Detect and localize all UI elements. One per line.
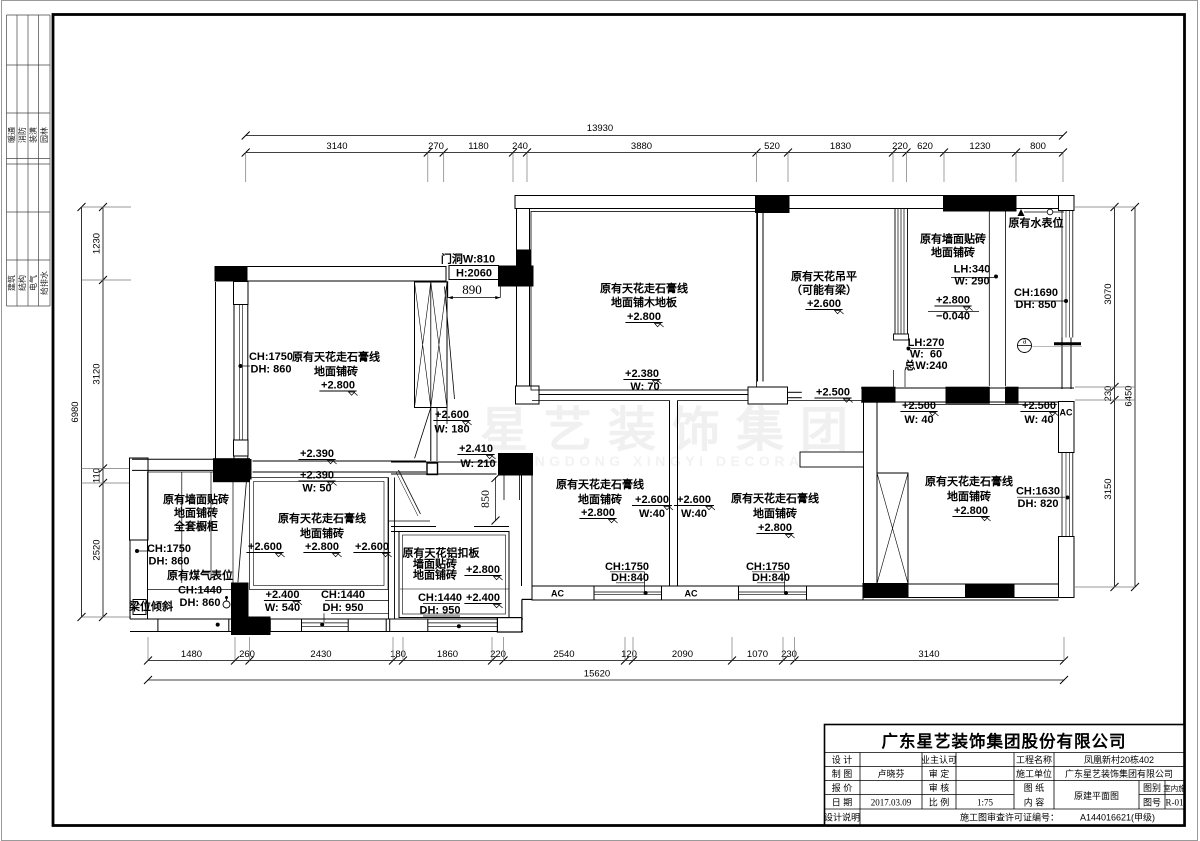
svg-text:+2.600: +2.600 — [807, 298, 841, 310]
svg-text:1070: 1070 — [747, 649, 768, 660]
svg-text:消防: 消防 — [17, 127, 27, 143]
svg-text:报 价: 报 价 — [832, 782, 853, 793]
svg-text:电气: 电气 — [28, 275, 38, 291]
svg-text:3120: 3120 — [92, 363, 103, 384]
svg-text:DH: 950: DH: 950 — [420, 605, 461, 617]
svg-text:AC: AC — [551, 589, 564, 599]
svg-text:W: 70: W: 70 — [630, 381, 659, 393]
svg-text:施工图审查许可证编号：: 施工图审查许可证编号： — [960, 812, 1059, 823]
svg-text:墙面贴砖: 墙面贴砖 — [413, 557, 457, 571]
svg-text:业主认可: 业主认可 — [921, 754, 957, 765]
svg-text:地面铺砖: 地面铺砖 — [947, 489, 991, 503]
svg-text:LH:340: LH:340 — [954, 264, 991, 276]
svg-text:图 纸: 图 纸 — [1024, 782, 1045, 793]
svg-text:原有天花走石膏线: 原有天花走石膏线 — [292, 350, 380, 364]
svg-text:+2.390: +2.390 — [300, 470, 334, 482]
svg-text:+2.600: +2.600 — [635, 494, 669, 506]
svg-text:+2.600: +2.600 — [355, 541, 389, 553]
svg-text:3070: 3070 — [1103, 283, 1114, 304]
svg-text:+2.410: +2.410 — [459, 443, 493, 455]
svg-text:地面铺砖: 地面铺砖 — [753, 506, 797, 520]
svg-text:原有墙面贴砖: 原有墙面贴砖 — [163, 492, 229, 506]
svg-text:园林: 园林 — [39, 127, 49, 143]
svg-text:日 期: 日 期 — [832, 798, 853, 808]
svg-text:审 核: 审 核 — [929, 782, 950, 793]
svg-text:1830: 1830 — [830, 141, 851, 152]
svg-text:+2.800: +2.800 — [627, 311, 661, 323]
svg-text:−0.040: −0.040 — [936, 311, 970, 323]
svg-text:6450: 6450 — [1124, 385, 1135, 406]
svg-text:2017.03.09: 2017.03.09 — [871, 798, 912, 808]
svg-text:设 计: 设 计 — [832, 754, 853, 765]
svg-text:+2.800: +2.800 — [936, 295, 970, 307]
svg-text:13930: 13930 — [587, 123, 613, 134]
svg-text:2430: 2430 — [310, 649, 331, 660]
svg-text:卢晓芬: 卢晓芬 — [877, 768, 904, 779]
svg-text:地面铺砖: 地面铺砖 — [931, 245, 975, 259]
svg-text:内 容: 内 容 — [1024, 797, 1045, 808]
svg-text:地面铺砖: 地面铺砖 — [300, 526, 344, 540]
svg-text:DH:840: DH:840 — [611, 572, 649, 584]
svg-text:W:40: W:40 — [639, 508, 665, 520]
svg-text:620: 620 — [917, 141, 933, 152]
svg-text:原有煤气表位: 原有煤气表位 — [167, 568, 233, 582]
svg-text:给排水: 给排水 — [39, 271, 49, 295]
svg-text:W: 50: W: 50 — [302, 483, 331, 495]
svg-text:原有天花走石膏线: 原有天花走石膏线 — [925, 474, 1013, 488]
svg-text:120: 120 — [621, 649, 637, 660]
svg-text:CH:1440: CH:1440 — [321, 589, 365, 601]
svg-text:地面铺木地板: 地面铺木地板 — [611, 295, 678, 309]
svg-text:广东星艺装饰集团股份有限公司: 广东星艺装饰集团股份有限公司 — [882, 731, 1127, 751]
svg-text:A144016621(甲级): A144016621(甲级) — [1080, 812, 1155, 823]
svg-text:+2.500: +2.500 — [816, 387, 850, 399]
svg-text:AC: AC — [1060, 408, 1073, 418]
svg-text:3140: 3140 — [918, 649, 939, 660]
svg-text:+2.400: +2.400 — [466, 592, 500, 604]
svg-text:DH: 860: DH: 860 — [180, 597, 221, 609]
svg-text:地面铺砖: 地面铺砖 — [174, 506, 218, 520]
svg-text:广东星艺装饰集团有限公司: 广东星艺装饰集团有限公司 — [1065, 768, 1173, 779]
svg-text:原有天花走石膏线: 原有天花走石膏线 — [731, 491, 819, 505]
svg-text:DH: 860: DH: 860 — [251, 364, 292, 376]
svg-text:1180: 1180 — [468, 141, 488, 152]
svg-text:15620: 15620 — [584, 669, 610, 680]
svg-text:2090: 2090 — [672, 649, 693, 660]
svg-text:+2.800: +2.800 — [466, 564, 500, 576]
svg-text:暖通: 暖通 — [6, 127, 16, 143]
svg-text:6980: 6980 — [70, 401, 81, 422]
svg-text:原有天花走石膏线: 原有天花走石膏线 — [600, 281, 688, 295]
svg-text:图号: 图号 — [1143, 798, 1161, 808]
svg-text:850: 850 — [478, 490, 492, 508]
svg-text:W: 540: W: 540 — [265, 602, 300, 614]
svg-text:1860: 1860 — [437, 649, 458, 660]
svg-text:1480: 1480 — [181, 649, 202, 660]
svg-text:3140: 3140 — [326, 141, 347, 152]
svg-text:+2.800: +2.800 — [321, 380, 355, 392]
svg-text:地面铺砖: 地面铺砖 — [314, 364, 358, 378]
svg-text:+2.800: +2.800 — [305, 541, 339, 553]
svg-text:原有天花走石膏线: 原有天花走石膏线 — [556, 477, 644, 491]
svg-text:LH:270: LH:270 — [908, 337, 945, 349]
svg-text:2520: 2520 — [92, 539, 103, 560]
svg-text:结构: 结构 — [17, 275, 27, 291]
svg-text:+2.600: +2.600 — [435, 409, 469, 421]
svg-text:+2.800: +2.800 — [954, 505, 988, 517]
svg-text:原有天花吊平: 原有天花吊平 — [791, 269, 857, 283]
svg-text:DH: 950: DH: 950 — [323, 602, 364, 614]
svg-text:890: 890 — [462, 282, 482, 297]
svg-text:W: 180: W: 180 — [434, 424, 469, 436]
svg-text:W: 60: W: 60 — [910, 349, 942, 361]
svg-text:GUANGDONG XINGYI DECORATION: GUANGDONG XINGYI DECORATION — [490, 453, 854, 469]
svg-text:W: 40: W: 40 — [1024, 414, 1053, 426]
svg-text:施工单位: 施工单位 — [1016, 768, 1052, 779]
svg-text:设计说明: 设计说明 — [824, 812, 860, 823]
svg-text:总W:240: 总W:240 — [904, 358, 947, 372]
svg-text:制 图: 制 图 — [832, 768, 853, 779]
svg-text:+2.600: +2.600 — [248, 541, 282, 553]
svg-text:+2.500: +2.500 — [902, 400, 936, 412]
svg-text:CH:1440: CH:1440 — [178, 585, 222, 597]
svg-text:AC: AC — [685, 589, 698, 599]
svg-text:室内施: 室内施 — [1163, 783, 1186, 793]
svg-text:原有天花走石膏线: 原有天花走石膏线 — [278, 511, 366, 525]
svg-text:DH: 860: DH: 860 — [149, 556, 190, 568]
svg-text:220: 220 — [892, 141, 908, 152]
svg-text:DH: 820: DH: 820 — [1018, 498, 1059, 510]
svg-text:+2.380: +2.380 — [625, 368, 659, 380]
svg-text:1:75: 1:75 — [977, 798, 994, 808]
svg-text:全套橱柜: 全套橱柜 — [173, 519, 218, 533]
svg-text:原有天花铝扣板: 原有天花铝扣板 — [403, 546, 481, 560]
svg-text:CH:1440: CH:1440 — [418, 592, 462, 604]
svg-text:工程名称: 工程名称 — [1016, 754, 1052, 765]
svg-text:270: 270 — [428, 141, 444, 152]
svg-text:CH:1690: CH:1690 — [1014, 287, 1058, 299]
svg-text:地面铺砖: 地面铺砖 — [413, 568, 457, 582]
svg-text:+2.500: +2.500 — [1022, 400, 1056, 412]
svg-text:审 定: 审 定 — [929, 768, 950, 779]
svg-text:原有水表位: 原有水表位 — [1009, 216, 1064, 230]
svg-text:W: 40: W: 40 — [904, 414, 933, 426]
svg-text:260: 260 — [239, 649, 255, 660]
svg-text:a: a — [1023, 337, 1027, 346]
svg-text:图别: 图别 — [1143, 783, 1161, 793]
svg-text:110: 110 — [92, 468, 103, 483]
svg-text:R-01: R-01 — [1166, 798, 1184, 808]
svg-text:比 例: 比 例 — [929, 797, 950, 808]
svg-text:2540: 2540 — [553, 649, 574, 660]
svg-text:W: 210: W: 210 — [460, 458, 495, 470]
svg-text:W:40: W:40 — [681, 508, 707, 520]
svg-text:+2.600: +2.600 — [677, 494, 711, 506]
svg-text:星艺装饰集团: 星艺装饰集团 — [480, 404, 864, 457]
svg-text:原有墙面贴砖: 原有墙面贴砖 — [920, 232, 986, 246]
svg-text:CH:1750: CH:1750 — [249, 351, 293, 363]
svg-text:H:2060: H:2060 — [456, 268, 492, 280]
svg-text:CH:1750: CH:1750 — [147, 543, 191, 555]
svg-text:CH:1630: CH:1630 — [1016, 486, 1060, 498]
svg-text:（可能有梁）: （可能有梁） — [791, 283, 857, 297]
svg-text:装潢: 装潢 — [28, 127, 38, 143]
svg-text:地面铺砖: 地面铺砖 — [578, 492, 622, 506]
svg-text:3150: 3150 — [1103, 478, 1114, 499]
svg-text:+2.800: +2.800 — [758, 522, 792, 534]
svg-text:1230: 1230 — [92, 233, 103, 254]
svg-text:原建平面图: 原建平面图 — [1074, 790, 1119, 801]
svg-text:+2.800: +2.800 — [581, 507, 615, 519]
svg-text:凤凰新村20栋402: 凤凰新村20栋402 — [1084, 754, 1154, 765]
svg-text:梁位倾斜: 梁位倾斜 — [128, 599, 173, 613]
svg-text:230: 230 — [1103, 386, 1114, 402]
svg-text:+2.400: +2.400 — [266, 589, 300, 601]
svg-text:建筑: 建筑 — [6, 275, 16, 291]
svg-text:1230: 1230 — [969, 141, 990, 152]
svg-text:门洞W:810: 门洞W:810 — [441, 252, 495, 266]
svg-text:3880: 3880 — [631, 141, 652, 152]
svg-text:180: 180 — [390, 649, 406, 660]
svg-text:800: 800 — [1030, 141, 1046, 152]
svg-text:240: 240 — [512, 141, 528, 152]
svg-text:+2.390: +2.390 — [300, 448, 334, 460]
svg-text:520: 520 — [764, 141, 780, 152]
